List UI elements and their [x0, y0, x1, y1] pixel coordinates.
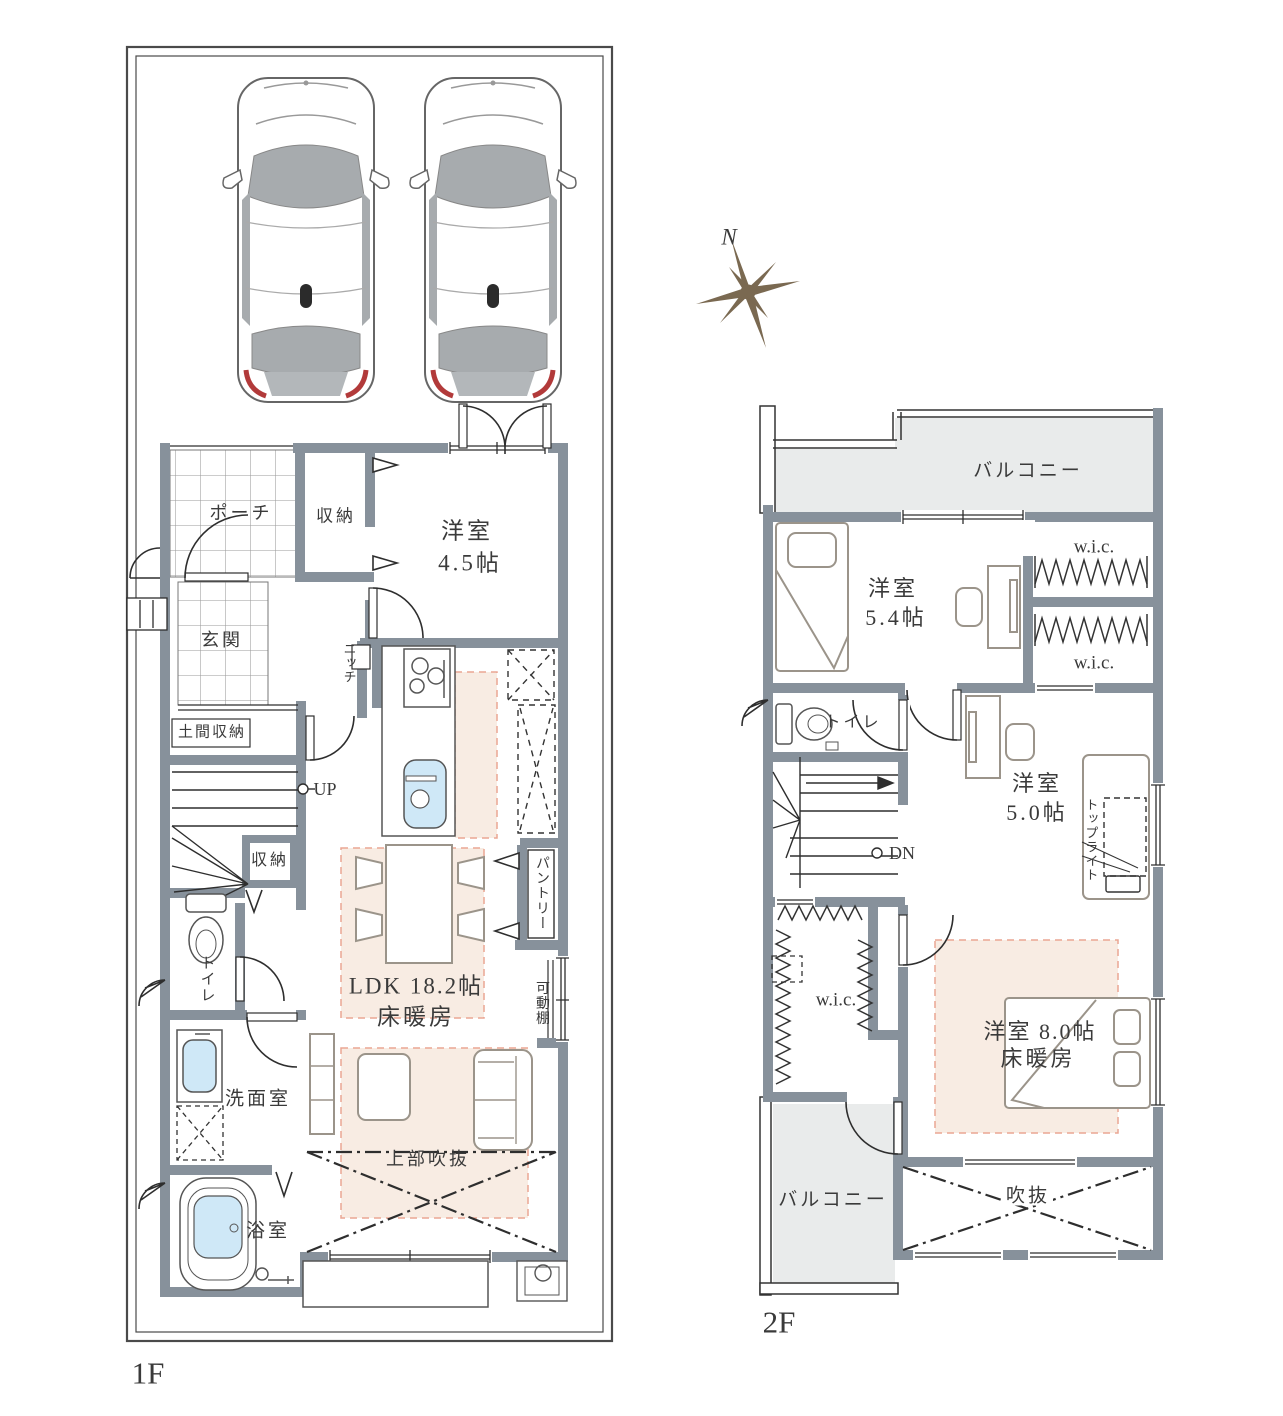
room-label-stair-closet: 収納 — [251, 853, 289, 869]
room-label-pantry: パントリー — [534, 856, 548, 931]
room-label-bathroom: 浴室 — [246, 1222, 290, 1241]
room-label-bedroom45-name: 洋室 — [441, 520, 493, 543]
void-marks-2f — [903, 1167, 1151, 1250]
room-label-washroom: 洗面室 — [225, 1090, 291, 1109]
floor1-plan — [127, 47, 612, 1341]
floor2-label: 2F — [763, 1307, 796, 1338]
room-label-void-2f: 吹抜 — [1003, 1187, 1053, 1206]
compass-icon — [696, 238, 800, 348]
floor1-label: 1F — [132, 1358, 165, 1389]
car-icon — [410, 78, 576, 402]
stairs-2f — [773, 757, 898, 888]
room-label-toplight: トップライト — [1085, 798, 1098, 882]
room-label-niche: ニッチ — [343, 642, 356, 684]
room-label-ldk: LDK 18.2帖 — [349, 975, 483, 998]
room-label-bedroom50-size: 5.0帖 — [1006, 802, 1068, 824]
room-label-wic-c: w.i.c. — [816, 991, 856, 1010]
room-label-bedroom80-title: 洋室 8.0帖 — [983, 1021, 1096, 1043]
car-icon — [223, 78, 389, 402]
room-label-balcony-north: バルコニー — [973, 462, 1083, 481]
stairs-up-label: UP — [313, 780, 336, 798]
room-label-toilet-1f: トイレ — [199, 955, 214, 1003]
kitchen-fixtures — [382, 646, 455, 836]
room-label-balcony-south: バルコニー — [778, 1191, 888, 1210]
stairs-down-label: DN — [889, 844, 915, 862]
room-label-bedroom54-size: 5.4帖 — [865, 607, 927, 629]
floor-plan-page: N 1F ポーチ 収納 洋室 4.5帖 玄関 ニッチ 土間収納 UP 収納 トイ… — [0, 0, 1283, 1416]
room-label-bedroom80-heating: 床暖房 — [1000, 1048, 1075, 1070]
room-label-void-above: 上部吹抜 — [386, 1150, 470, 1168]
washer-space — [177, 1106, 223, 1160]
room-label-entrance: 玄関 — [201, 631, 243, 649]
room-label-wic-b: w.i.c. — [1074, 654, 1114, 673]
room-label-toilet-2f: トイレ — [824, 715, 881, 731]
room-label-bedroom45-size: 4.5帖 — [438, 552, 502, 575]
room-label-porch: ポーチ — [210, 504, 273, 522]
room-label-wic-a: w.i.c. — [1074, 538, 1114, 557]
room-label-entry-closet: 収納 — [316, 508, 356, 525]
doors-2f — [742, 681, 961, 1154]
room-label-bedroom54-name: 洋室 — [868, 578, 918, 600]
room-label-bedroom50-name: 洋室 — [1012, 773, 1062, 795]
floor-plan-graphics — [0, 0, 1283, 1416]
room-label-doma-storage: 土間収納 — [178, 726, 246, 741]
compass-north-label: N — [721, 226, 736, 249]
room-label-ldk-heating: 床暖房 — [377, 1006, 455, 1029]
dashed-appliances — [508, 650, 555, 833]
outdoor-unit — [517, 1261, 567, 1301]
room-label-movable-shelf: 可動棚 — [534, 981, 548, 1026]
